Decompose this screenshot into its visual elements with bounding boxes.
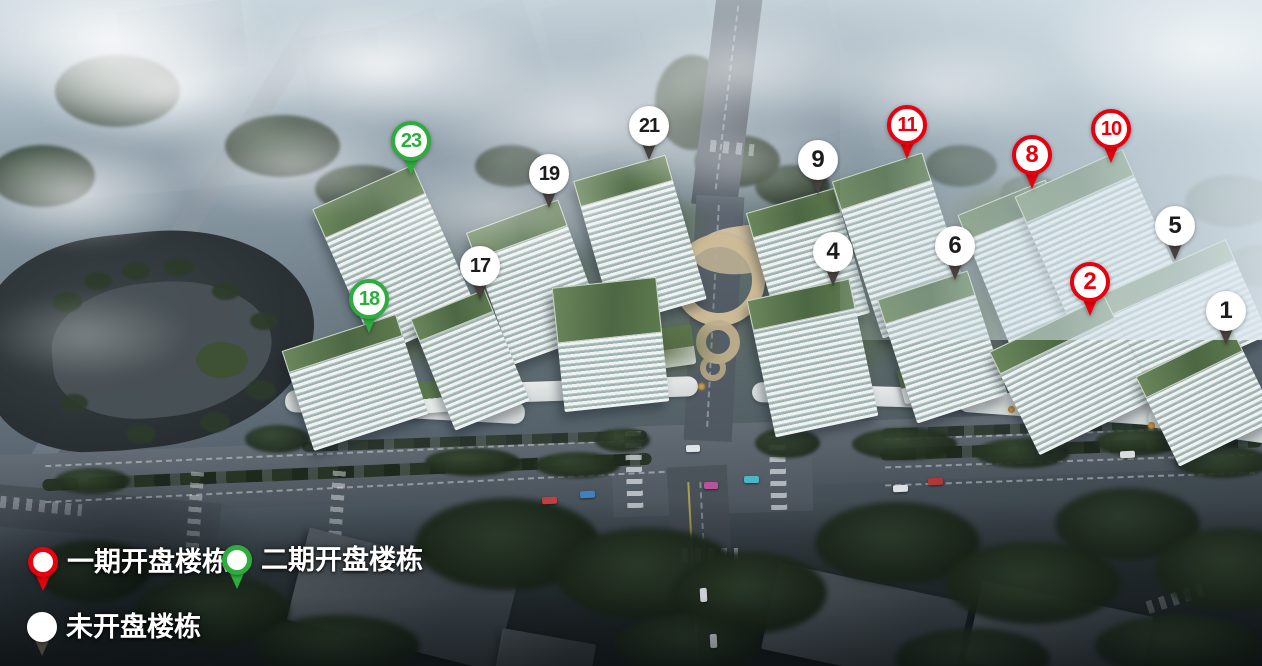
- pin-number: 11: [897, 115, 916, 135]
- marker-pin-8[interactable]: 8: [1012, 135, 1052, 195]
- marker-pin-10[interactable]: 10: [1091, 109, 1131, 169]
- marker-pin-9[interactable]: 9: [798, 140, 838, 200]
- pin-number: 2: [1083, 270, 1096, 294]
- phase1-pin-icon: [28, 547, 58, 593]
- marker-pin-17[interactable]: 17: [460, 246, 500, 306]
- pin-circle: 18: [349, 279, 389, 319]
- pin-number: 8: [1025, 143, 1038, 167]
- pin-number: 21: [639, 116, 659, 136]
- marker-pin-23[interactable]: 23: [391, 121, 431, 181]
- legend-label-unopened: 未开盘楼栋: [66, 612, 201, 642]
- pin-number: 10: [1101, 119, 1121, 139]
- marker-pin-21[interactable]: 21: [629, 106, 669, 166]
- pin-circle: 6: [935, 226, 975, 266]
- pin-number: 1: [1219, 299, 1232, 323]
- pin-circle: 1: [1206, 291, 1246, 331]
- pin-circle: 4: [813, 232, 853, 272]
- pin-number: 23: [401, 131, 421, 151]
- pin-number: 4: [826, 240, 839, 264]
- pin-circle: 2: [1070, 262, 1110, 302]
- pin-circle: 9: [798, 140, 838, 180]
- unopened-pin-icon: [27, 612, 57, 658]
- phase2-pin-icon: [222, 545, 252, 591]
- marker-pin-11[interactable]: 11: [887, 105, 927, 165]
- pin-circle: 11: [887, 105, 927, 145]
- pin-number: 9: [811, 148, 824, 172]
- pin-circle: [27, 612, 57, 642]
- pin-circle: [28, 547, 58, 577]
- pin-number: 5: [1168, 214, 1181, 238]
- legend-item-phase1: 一期开盘楼栋: [28, 547, 229, 593]
- marker-pin-18[interactable]: 18: [349, 279, 389, 339]
- pin-circle: 10: [1091, 109, 1131, 149]
- marker-pin-2[interactable]: 2: [1070, 262, 1110, 322]
- legend-label-phase1: 一期开盘楼栋: [67, 547, 229, 577]
- pin-circle: 19: [529, 154, 569, 194]
- pin-circle: 8: [1012, 135, 1052, 175]
- pin-number: 17: [470, 256, 490, 276]
- pin-circle: 5: [1155, 206, 1195, 246]
- site-aerial-map: 124568910111718192123 一期开盘楼栋 二期开盘楼栋 未开盘楼…: [0, 0, 1262, 666]
- marker-pin-4[interactable]: 4: [813, 232, 853, 292]
- legend-label-phase2: 二期开盘楼栋: [261, 545, 423, 575]
- pin-number: 6: [948, 234, 961, 258]
- pin-circle: 17: [460, 246, 500, 286]
- marker-pin-1[interactable]: 1: [1206, 291, 1246, 351]
- pin-circle: 23: [391, 121, 431, 161]
- marker-pin-6[interactable]: 6: [935, 226, 975, 286]
- marker-pin-19[interactable]: 19: [529, 154, 569, 214]
- marker-pin-5[interactable]: 5: [1155, 206, 1195, 266]
- pin-number: 19: [539, 164, 559, 184]
- legend-item-unopened: 未开盘楼栋: [27, 612, 201, 658]
- pin-number: 18: [359, 289, 379, 309]
- pin-circle: [222, 545, 252, 575]
- pin-circle: 21: [629, 106, 669, 146]
- legend-item-phase2: 二期开盘楼栋: [222, 545, 423, 591]
